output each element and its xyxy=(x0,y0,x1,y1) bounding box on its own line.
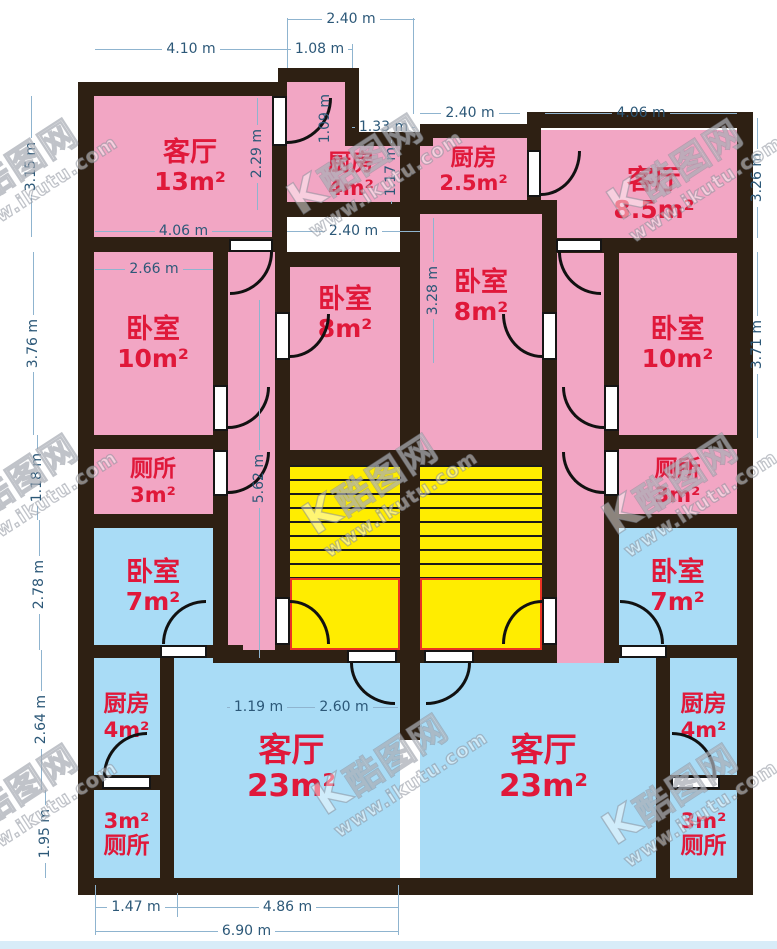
dimension: 5.62 m xyxy=(250,300,268,658)
room-kitchen-2-5-right: 厨房 2.5m² xyxy=(420,138,527,202)
dimension: 1.09 m xyxy=(316,90,334,144)
door-leaf xyxy=(671,776,720,789)
door-leaf xyxy=(604,385,619,431)
door-leaf xyxy=(556,239,602,252)
dimension: 1.19 m xyxy=(227,698,290,716)
wall xyxy=(78,82,287,96)
wall xyxy=(275,252,400,267)
dimension: 3.71 m xyxy=(748,252,766,438)
wall xyxy=(618,435,738,449)
door-leaf xyxy=(102,776,151,789)
extension-line xyxy=(95,885,96,935)
bottom-edge-strip xyxy=(0,941,777,949)
wall xyxy=(78,878,753,895)
door-leaf xyxy=(604,450,619,496)
dimension: 3.76 m xyxy=(24,252,42,435)
dimension: 1.95 m xyxy=(36,790,54,878)
door-leaf xyxy=(542,312,557,360)
dimension: 1.08 m xyxy=(287,40,352,58)
room-toilet-3-right: 厕所 3m² xyxy=(618,449,737,514)
dimension: 2.40 m xyxy=(287,222,420,240)
dimension: 3.26 m xyxy=(748,118,766,238)
dimension: 2.40 m xyxy=(420,104,520,122)
extension-line xyxy=(413,18,414,114)
dimension: 1.47 m xyxy=(95,898,177,916)
room-bedroom-10-left: 卧室 10m² xyxy=(93,252,213,435)
wall xyxy=(420,450,557,465)
door-leaf xyxy=(229,239,273,252)
door-leaf xyxy=(527,150,541,197)
dimension: 2.78 m xyxy=(30,520,48,650)
door-leaf xyxy=(213,450,228,496)
room-toilet-3-bottom-right: 3m² 厕所 xyxy=(670,790,737,878)
wall xyxy=(272,202,420,217)
extension-line xyxy=(287,18,288,68)
door-leaf xyxy=(160,645,207,658)
room-living-8-5-right: 客厅 8.5m² xyxy=(541,130,737,238)
dimension: 4.06 m xyxy=(545,104,737,122)
dimension: 1.18 m xyxy=(28,435,46,520)
dimension: 2.64 m xyxy=(32,650,50,790)
wall xyxy=(420,200,557,214)
door-leaf xyxy=(620,645,667,658)
wall xyxy=(618,514,738,528)
wall xyxy=(275,450,400,465)
door-leaf xyxy=(424,650,474,663)
dimension: 3.28 m xyxy=(424,218,442,363)
wall xyxy=(160,653,174,878)
dimension: 2.40 m xyxy=(287,10,415,28)
wall xyxy=(93,435,228,449)
dimension: 3.15 m xyxy=(22,96,40,237)
dimension: 1.17 m xyxy=(382,140,400,204)
room-toilet-3-bottom-left: 3m² 厕所 xyxy=(93,790,160,878)
door-leaf xyxy=(275,312,290,360)
wall xyxy=(656,653,670,878)
door-leaf xyxy=(272,96,287,146)
wall xyxy=(78,82,94,895)
door-leaf xyxy=(542,597,557,645)
room-toilet-3-left: 厕所 3m² xyxy=(93,449,213,514)
door-leaf xyxy=(347,650,397,663)
dimension: 1.33 m xyxy=(352,118,415,136)
dimension: 6.90 m xyxy=(95,922,398,940)
wall xyxy=(420,124,540,138)
dimension: 2.60 m xyxy=(290,698,398,716)
dimension: 2.29 m xyxy=(248,98,266,210)
dimension: 4.06 m xyxy=(95,222,272,240)
door-leaf xyxy=(213,385,228,431)
wall xyxy=(93,514,228,528)
dimension: 4.86 m xyxy=(177,898,398,916)
dimension: 2.66 m xyxy=(95,260,213,278)
room-bedroom-8-left: 卧室 8m² xyxy=(290,267,400,450)
extension-line xyxy=(177,893,178,917)
door-leaf xyxy=(275,597,290,645)
extension-line xyxy=(352,44,353,68)
floor-plan: 客厅 23m² 客厅 23m² 客厅 13m² 厨房 4m² 厨房 2.5m² … xyxy=(0,0,777,949)
room-bedroom-10-right: 卧室 10m² xyxy=(618,252,737,435)
dimension: 4.10 m xyxy=(95,40,287,58)
extension-line xyxy=(398,885,399,935)
